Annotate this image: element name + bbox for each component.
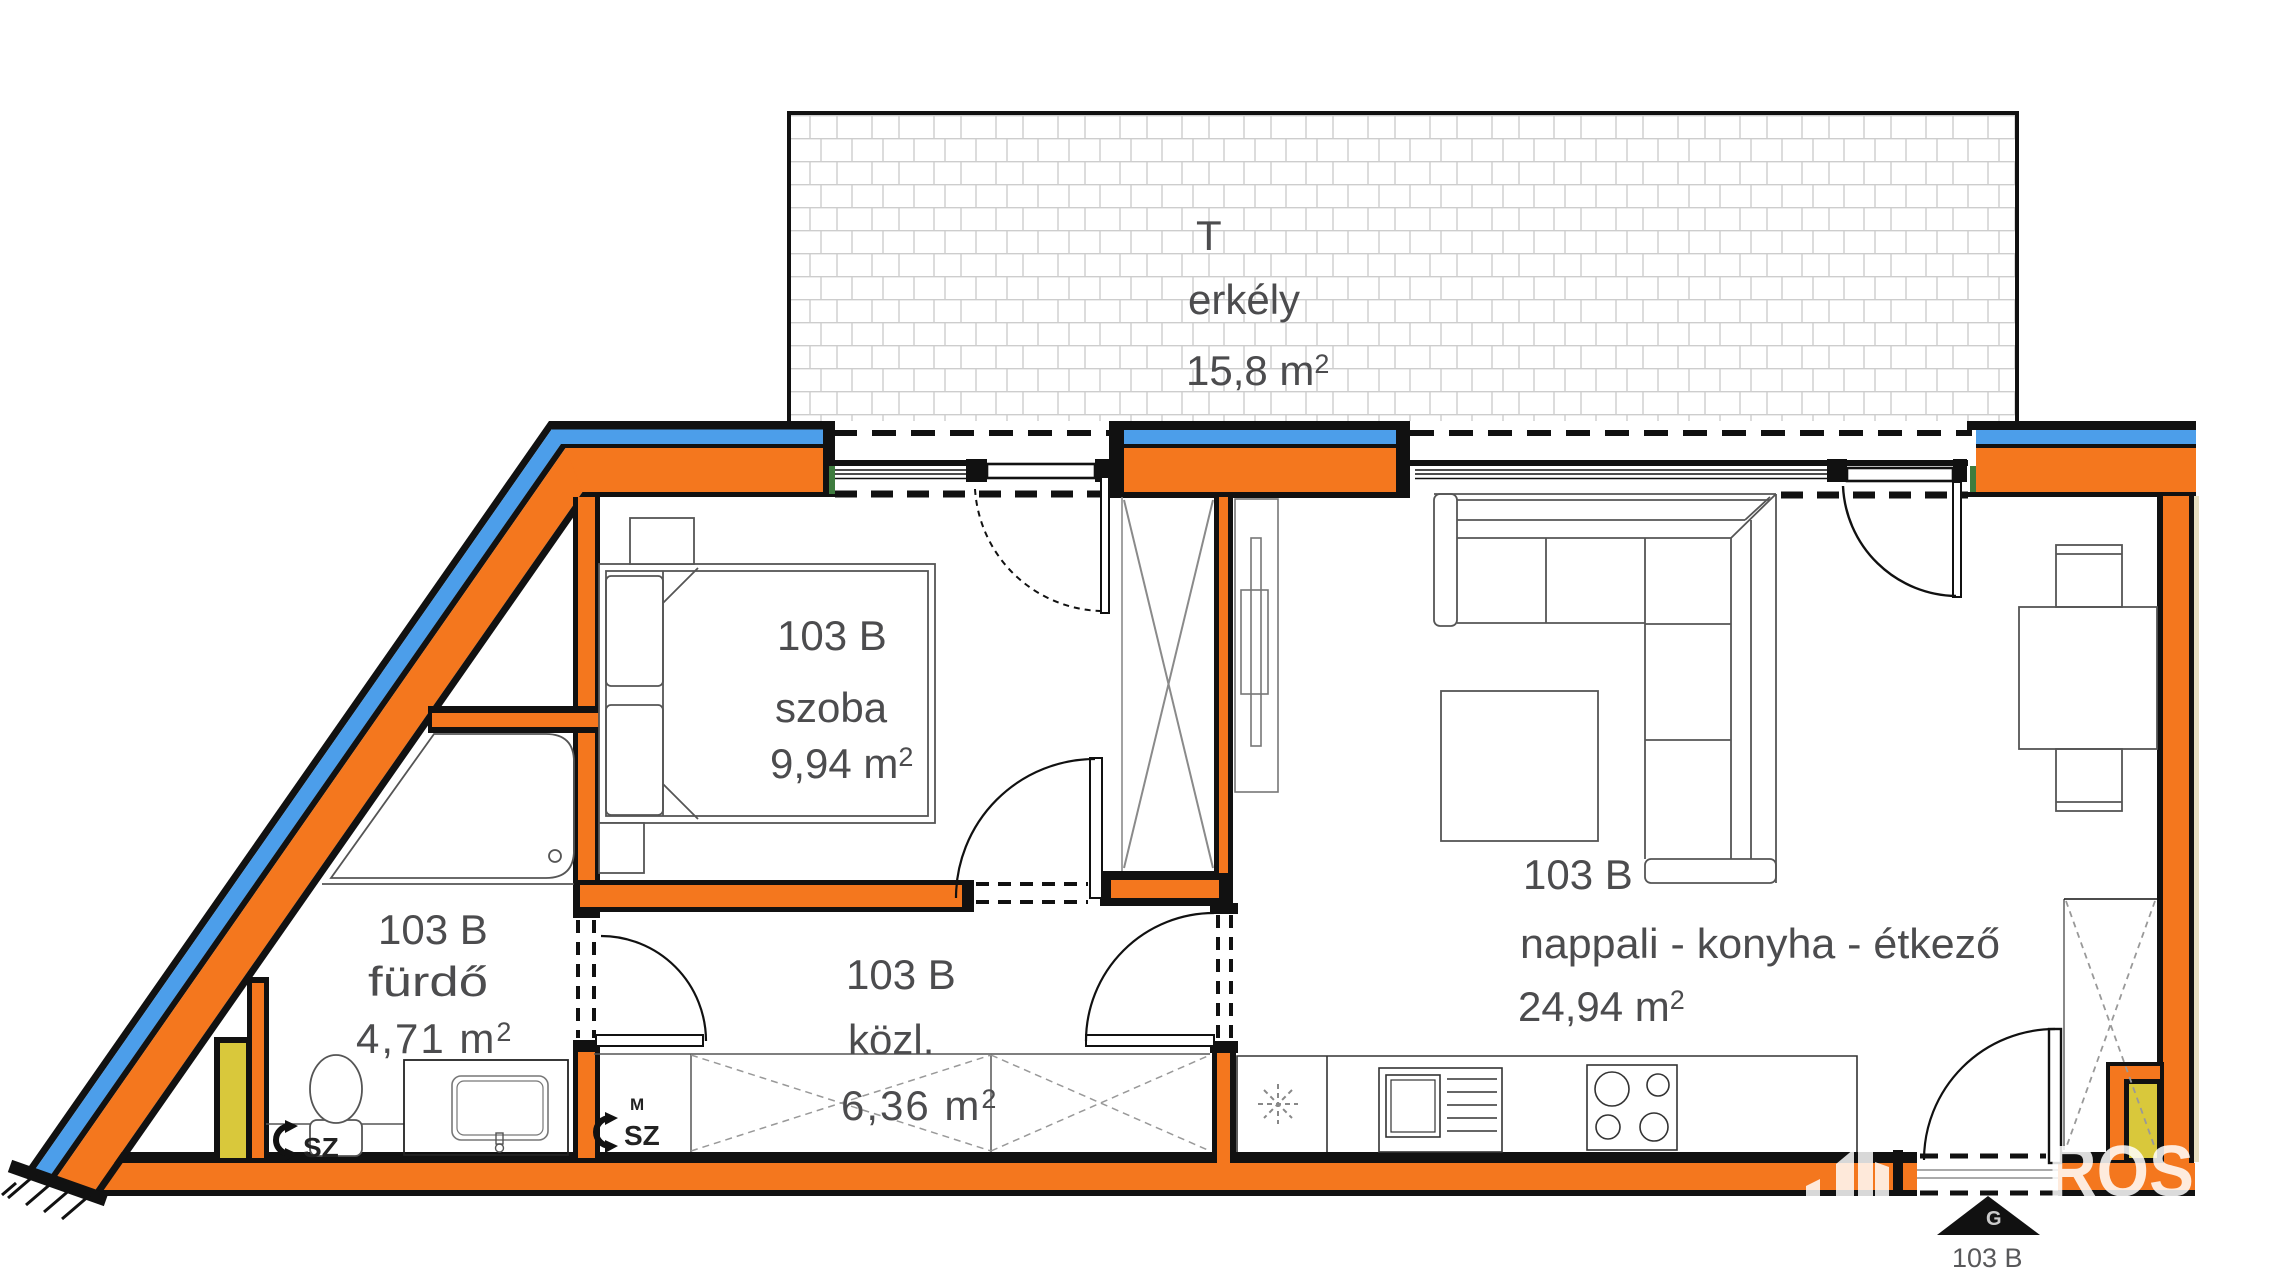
svg-text:103 B: 103 B <box>378 906 488 953</box>
svg-text:T: T <box>1196 212 1222 259</box>
svg-text:103 B: 103 B <box>1523 851 1633 898</box>
svg-text:közl.: közl. <box>848 1016 934 1063</box>
svg-text:SZ: SZ <box>303 1132 339 1163</box>
svg-text:9,94 m2: 9,94 m2 <box>770 740 913 787</box>
svg-text:103 B: 103 B <box>777 612 887 659</box>
svg-text:4,71 m2: 4,71 m2 <box>356 1015 513 1062</box>
svg-text:103 B: 103 B <box>846 951 956 998</box>
svg-text:M: M <box>630 1095 644 1114</box>
svg-text:nappali - konyha - étkező: nappali - konyha - étkező <box>1520 920 2000 967</box>
svg-text:6,36 m2: 6,36 m2 <box>841 1082 998 1129</box>
svg-text:SZ: SZ <box>624 1120 660 1151</box>
svg-text:15,8 m2: 15,8 m2 <box>1186 347 1329 394</box>
svg-text:103 B: 103 B <box>1952 1243 2023 1273</box>
svg-text:fürdő: fürdő <box>368 958 488 1005</box>
svg-text:ROS: ROS <box>2048 1132 2194 1212</box>
svg-text:erkély: erkély <box>1188 276 1300 323</box>
svg-text:24,94 m2: 24,94 m2 <box>1518 983 1685 1030</box>
svg-text:N G A: N G A <box>1934 1208 2069 1230</box>
svg-text:szoba: szoba <box>775 684 888 731</box>
